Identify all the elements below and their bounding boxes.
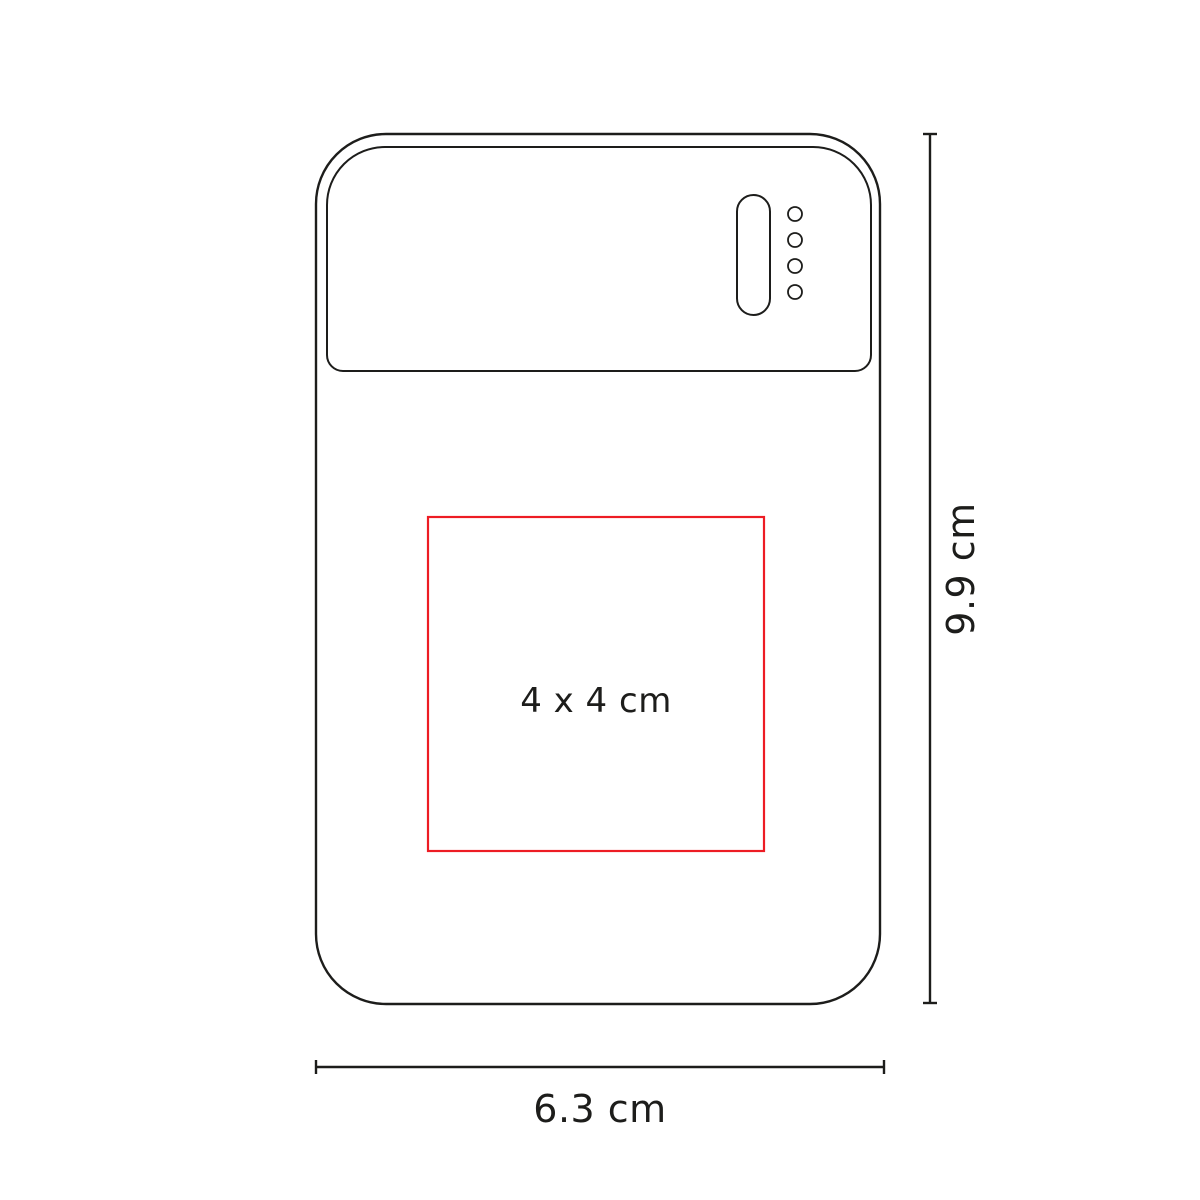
width-dimension-label: 6.3 cm [533, 1087, 666, 1131]
product-print-area-diagram: 4 x 4 cm 9.9 cm 6.3 cm [0, 0, 1200, 1200]
diagram-background [0, 0, 1200, 1200]
print-area-label: 4 x 4 cm [520, 681, 672, 721]
diagram-canvas: 4 x 4 cm 9.9 cm 6.3 cm [0, 0, 1200, 1200]
height-dimension-label: 9.9 cm [939, 502, 983, 635]
